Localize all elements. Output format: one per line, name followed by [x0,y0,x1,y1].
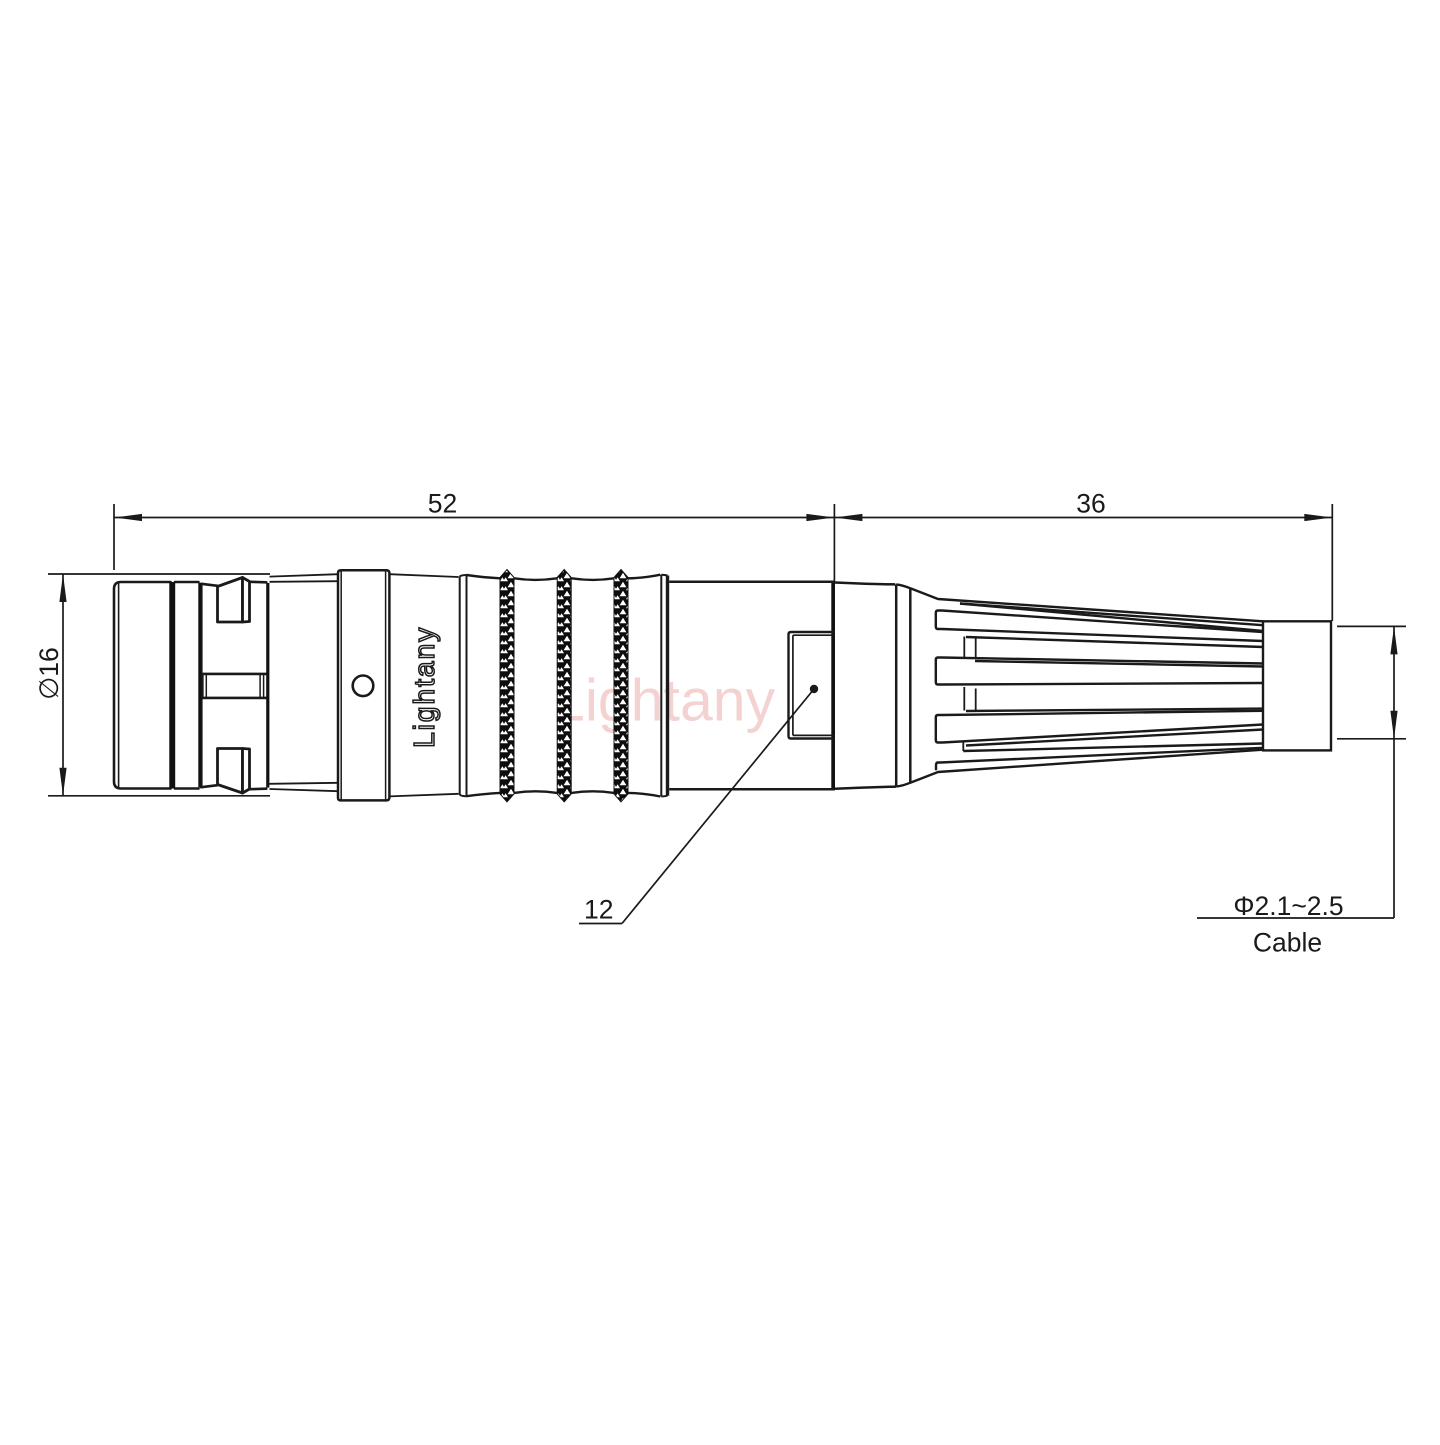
svg-text:Φ2.1~2.5: Φ2.1~2.5 [1233,891,1343,921]
svg-text:Cable: Cable [1253,928,1322,958]
svg-text:36: 36 [1076,489,1105,519]
svg-text:12: 12 [584,895,613,925]
svg-text:52: 52 [428,489,457,519]
svg-text:∅16: ∅16 [34,647,64,700]
svg-text:Lightany: Lightany [409,626,441,748]
svg-text:Lightany: Lightany [552,668,776,734]
